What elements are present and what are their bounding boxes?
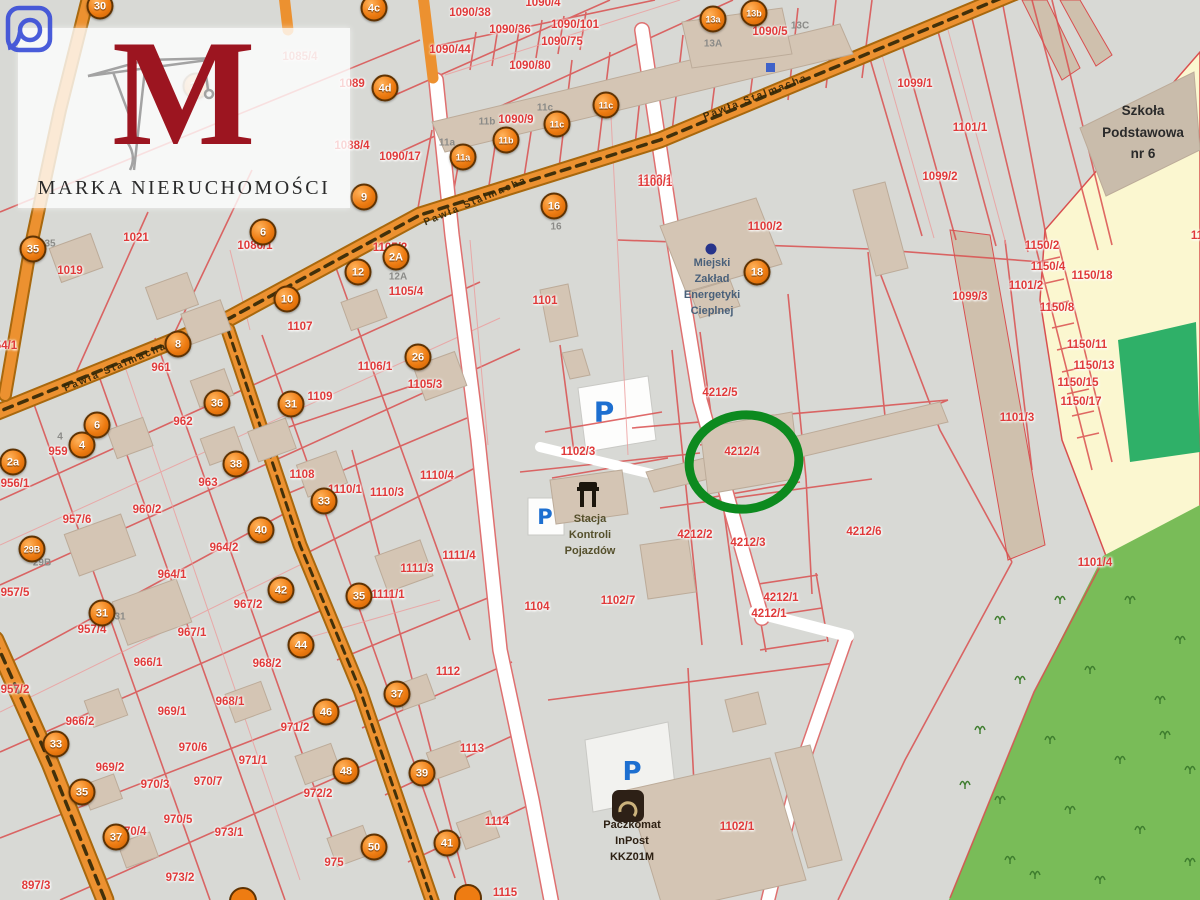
brand-logo-letter: M bbox=[112, 4, 255, 183]
watermark: M MARKA NIERUCHOMOŚCI bbox=[18, 28, 350, 208]
school-label: Szkoła Podstawowa nr 6 bbox=[1102, 100, 1184, 165]
vehicle-inspection-label: Stacja Kontroli Pojazdów bbox=[565, 512, 616, 560]
brand-name: MARKA NIERUCHOMOŚCI bbox=[18, 177, 350, 200]
mzec-dot-icon bbox=[706, 244, 717, 255]
sports-field-area bbox=[1118, 322, 1200, 462]
portal-logo-icon bbox=[0, 0, 62, 62]
bus-stop-icon bbox=[766, 63, 775, 72]
mzec-label: Miejski Zakład Energetyki Cieplnej bbox=[684, 256, 740, 320]
cadastral-map: Pawła Stalmacha Pawła Stalmacha Pawła St… bbox=[0, 0, 1200, 900]
parcel-locker-label: Paczkomat InPost KKZ01M bbox=[603, 818, 660, 866]
